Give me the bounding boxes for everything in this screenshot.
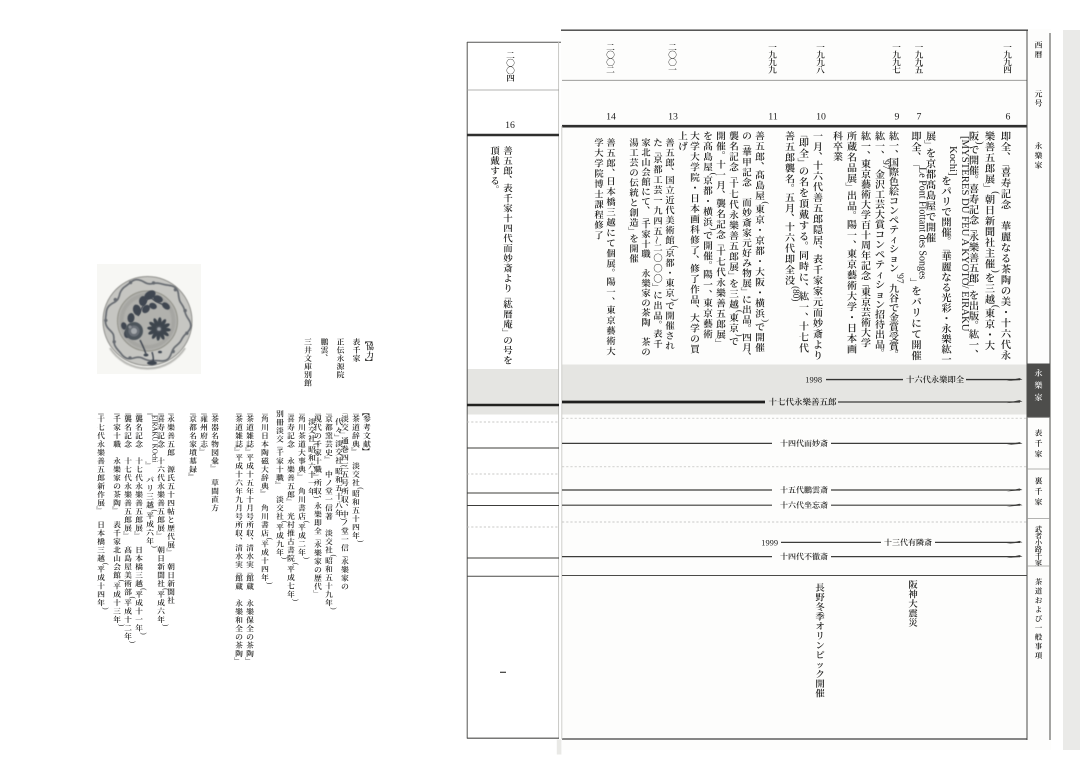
svg-text:1998: 1998 (805, 376, 822, 385)
svg-text:EIRAKU KOchi: EIRAKU KOchi (150, 415, 158, 463)
svg-text:1999: 1999 (761, 538, 778, 547)
svg-text:): ) (709, 228, 719, 231)
svg-text:11: 11 (768, 112, 778, 123)
svg-text:): ) (671, 298, 681, 301)
svg-text:(: ( (735, 310, 745, 313)
svg-text:): ) (974, 141, 985, 144)
svg-text:Le Pont Flottant des Songes: Le Pont Flottant des Songes (917, 167, 928, 279)
svg-text:13: 13 (668, 112, 678, 123)
svg-text:(: ( (709, 173, 719, 176)
svg-text:'97: '97 (881, 159, 891, 170)
svg-text:(: ( (990, 191, 1001, 194)
svg-text:6: 6 (1006, 112, 1011, 123)
svg-text:9: 9 (895, 112, 900, 123)
svg-text:7: 7 (917, 112, 922, 123)
svg-text:): ) (761, 319, 771, 322)
svg-text:10: 10 (816, 112, 826, 123)
svg-text:(: ( (990, 305, 1001, 308)
svg-text:): ) (990, 270, 1001, 273)
svg-text:(: ( (671, 246, 681, 249)
svg-text:(: ( (761, 201, 771, 204)
svg-text:): ) (735, 334, 745, 337)
svg-text:'97: '97 (895, 273, 905, 284)
svg-text:14: 14 (606, 112, 616, 123)
svg-text:Kochi]: Kochi] (947, 146, 959, 176)
svg-text:(80): (80) (791, 286, 801, 301)
svg-text:[MYSTERES DU FEU A KYOTO/ EIRA: [MYSTERES DU FEU A KYOTO/ EIRAKU (959, 136, 971, 332)
svg-text:16: 16 (505, 120, 515, 131)
